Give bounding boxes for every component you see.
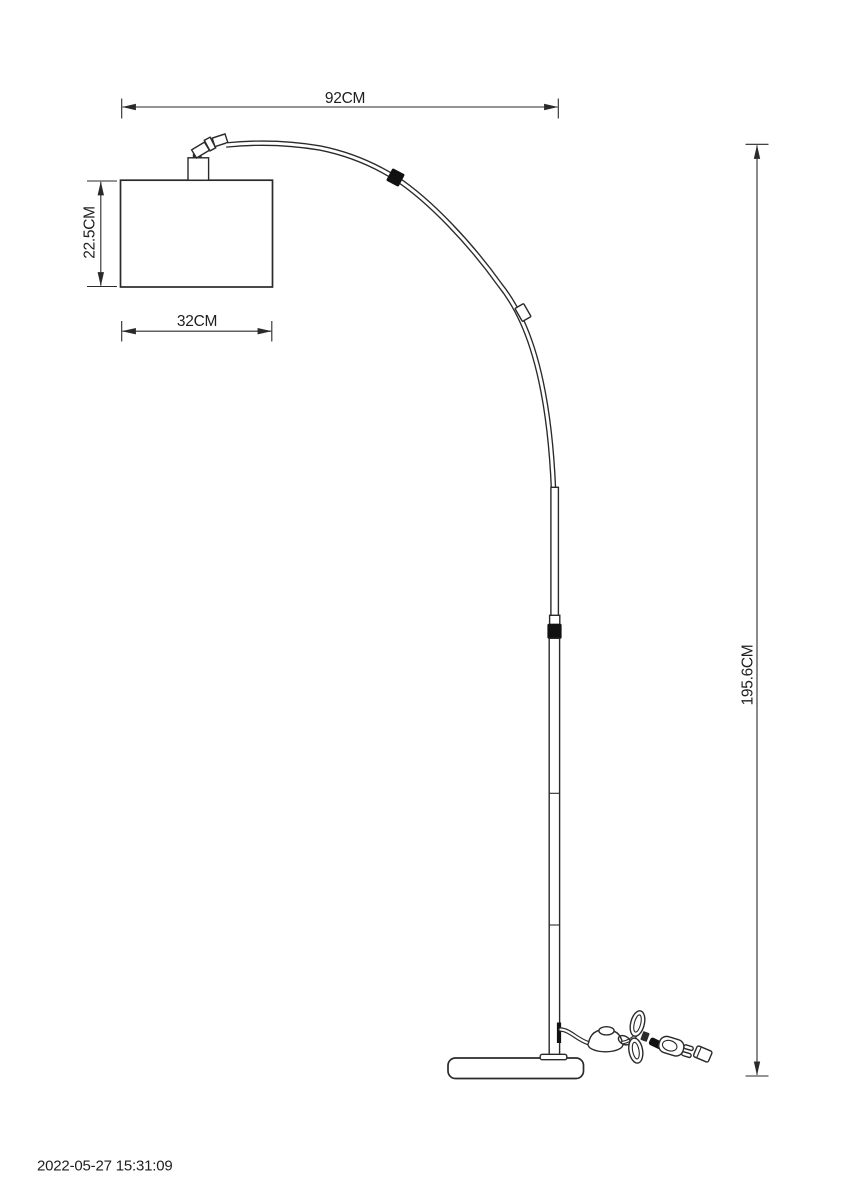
foot-switch-button: [599, 1027, 614, 1035]
cord-exit: [557, 1023, 561, 1044]
swivel-joint: [192, 134, 228, 158]
cable-knot: [640, 1031, 650, 1042]
diagram-page: 92CM 22.5CM 32CM 195.6CM: [0, 0, 848, 1200]
dimension-reach: 92CM: [122, 90, 559, 119]
cable-loop-lower: [627, 1037, 645, 1064]
power-plug: [657, 1035, 695, 1061]
base-flange: [540, 1054, 567, 1059]
base: [448, 1058, 584, 1079]
power-cord: [561, 1030, 589, 1044]
plug-pin: [681, 1051, 691, 1058]
lamp-shade: [121, 180, 273, 287]
dimension-shade-height-label: 22.5CM: [82, 206, 99, 258]
lamp-technical-drawing: 92CM 22.5CM 32CM 195.6CM: [0, 0, 848, 1200]
dimension-shade-height: 22.5CM: [82, 181, 118, 287]
dimension-shade-width-label: 32CM: [177, 313, 217, 330]
upper-pole: [551, 487, 559, 623]
shade-fitting: [188, 158, 209, 180]
swivel-joint-segment: [212, 134, 228, 147]
locking-grip: [547, 624, 561, 639]
arc-tube: [226, 143, 554, 489]
pole-collar: [550, 615, 560, 624]
plug-cover: [693, 1045, 713, 1062]
timestamp: 2022-05-27 15:31:09: [37, 1158, 173, 1175]
arc-tube-outline: [226, 143, 554, 489]
dimension-total-height: 195.6CM: [740, 144, 769, 1076]
dimension-shade-width: 32CM: [122, 313, 272, 342]
plug-cover-body: [693, 1045, 713, 1062]
dimension-reach-label: 92CM: [325, 90, 365, 107]
dimension-total-height-label: 195.6CM: [740, 645, 757, 706]
plug-pin: [683, 1044, 693, 1051]
lower-pole: [549, 638, 559, 1055]
arc-tube-core: [226, 143, 554, 489]
